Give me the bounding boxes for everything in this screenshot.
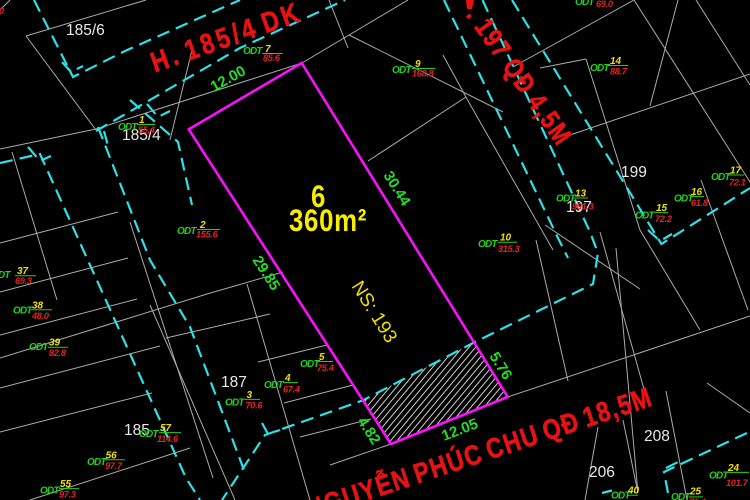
svg-text:69.0: 69.0 [596, 0, 614, 9]
svg-text:199: 199 [621, 164, 647, 181]
svg-text:70.6: 70.6 [246, 401, 264, 411]
svg-text:82.8: 82.8 [49, 348, 67, 358]
svg-text:ODT: ODT [243, 46, 263, 57]
svg-text:72.2: 72.2 [655, 214, 673, 224]
svg-text:114.6: 114.6 [157, 434, 179, 444]
svg-text:ODT: ODT [29, 342, 49, 353]
svg-text:88.7: 88.7 [610, 67, 628, 77]
svg-text:97.3: 97.3 [59, 490, 76, 500]
svg-text:206: 206 [589, 464, 615, 481]
svg-text:ODT: ODT [177, 226, 197, 237]
svg-text:ODT: ODT [13, 306, 33, 317]
svg-text:168.8: 168.8 [412, 69, 435, 79]
svg-text:187: 187 [221, 374, 247, 391]
svg-text:315.3: 315.3 [498, 244, 520, 254]
svg-text:97.7: 97.7 [105, 461, 123, 471]
svg-text:ODT: ODT [392, 65, 412, 76]
svg-text:61.8: 61.8 [691, 198, 709, 208]
svg-text:85.6: 85.6 [263, 53, 281, 63]
svg-text:ODT: ODT [0, 270, 11, 281]
svg-text:360m²: 360m² [289, 204, 367, 239]
svg-text:155.6: 155.6 [196, 230, 219, 240]
svg-text:ODT: ODT [264, 380, 284, 391]
svg-text:48.0: 48.0 [31, 311, 50, 321]
svg-text:185/6: 185/6 [66, 22, 105, 39]
svg-text:ODT: ODT [575, 0, 595, 8]
svg-text:101.7: 101.7 [726, 478, 749, 488]
svg-text:ODT: ODT [40, 486, 60, 497]
svg-text:69.3: 69.3 [15, 276, 32, 286]
svg-text:ODT: ODT [225, 398, 245, 409]
svg-text:67.4: 67.4 [283, 384, 300, 394]
svg-text:ODT: ODT [590, 63, 610, 74]
svg-text:25: 25 [689, 487, 702, 498]
svg-text:ODT: ODT [118, 122, 138, 133]
svg-text:ODT: ODT [478, 239, 498, 250]
svg-text:75.4: 75.4 [317, 363, 334, 373]
svg-text:55,4: 55,4 [138, 125, 155, 135]
svg-text:901.3: 901.3 [572, 202, 594, 212]
svg-text:72.1: 72.1 [729, 178, 746, 188]
svg-text:ODT: ODT [635, 211, 655, 222]
svg-text:208: 208 [644, 428, 670, 445]
